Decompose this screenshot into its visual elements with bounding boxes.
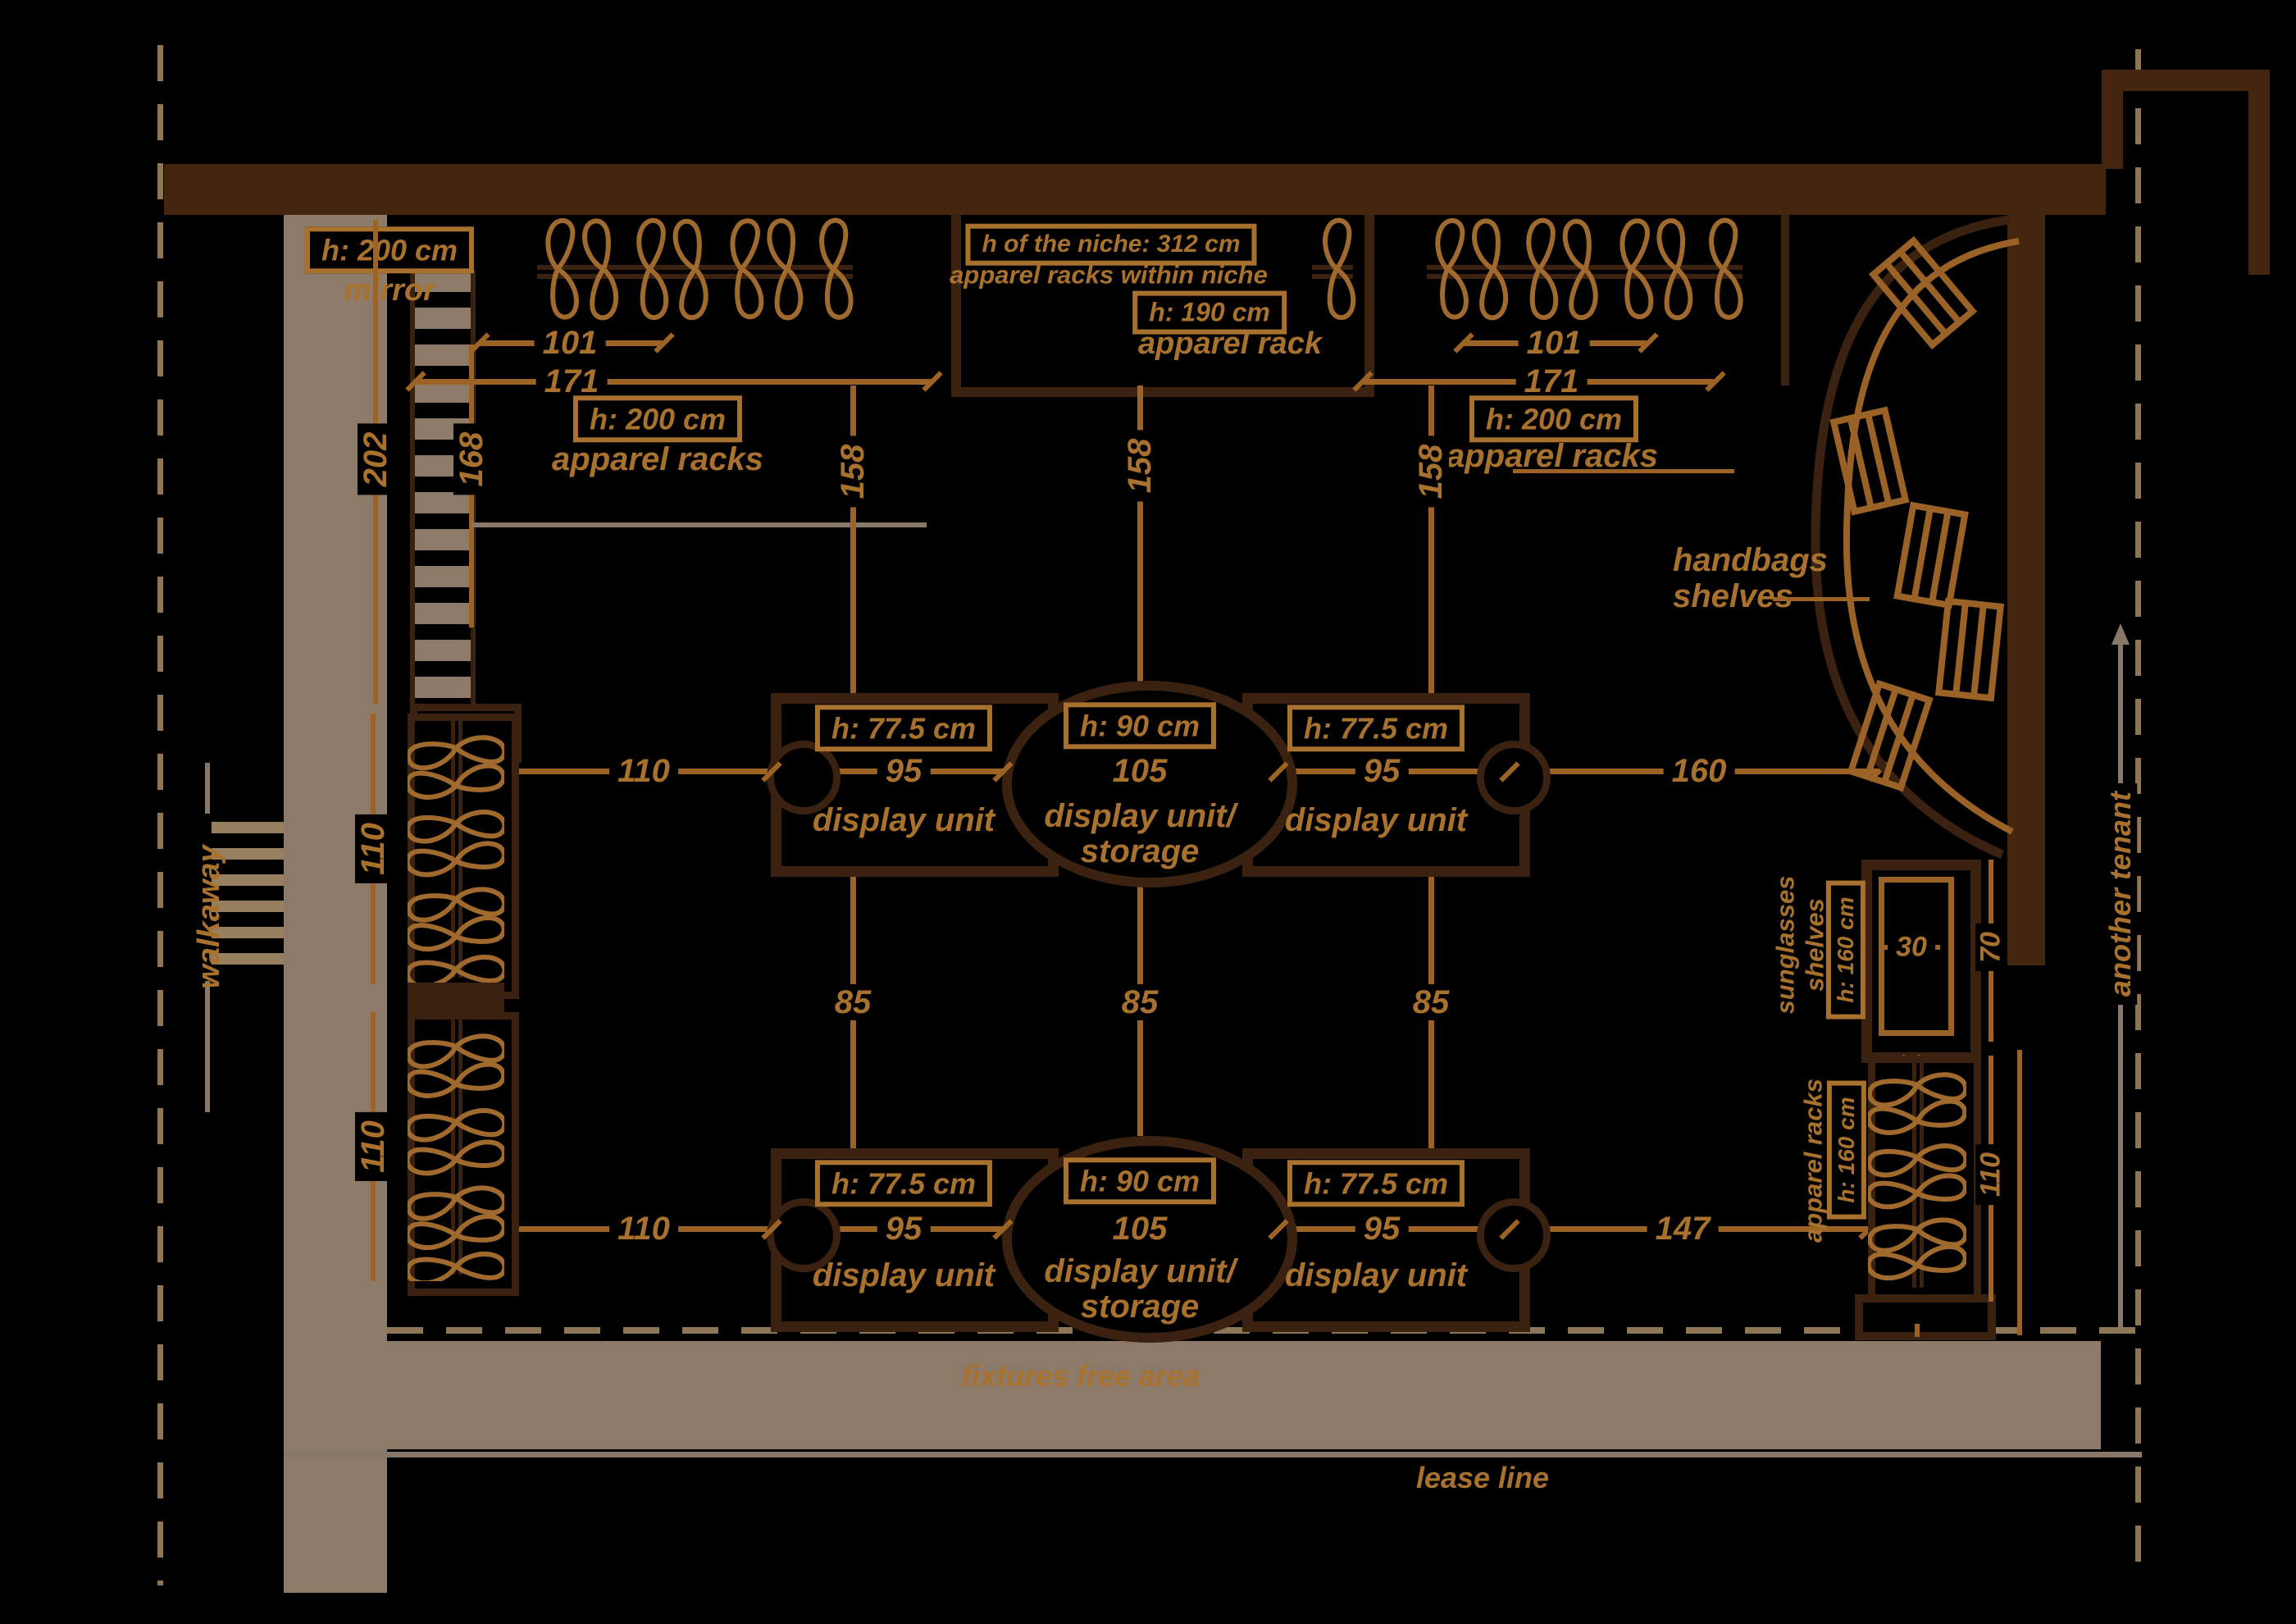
sunglasses-depth-dim: 70 [1975,924,2006,971]
mirror-edge-left [410,271,415,705]
right-rack-height-label: h: 200 cm [1469,395,1638,442]
left-rack-height-label: h: 200 cm [573,395,742,442]
arrow-up-icon [2111,623,2130,645]
handbags-leader-line [1773,597,1870,601]
right-rack-hangers-icon [1868,1056,1966,1294]
drop-dim-left: 158 [835,436,871,508]
oval-label-2: storage [1081,1289,1200,1324]
right-edge-line [2017,1050,2022,1335]
top-right-wall-join [2102,70,2123,169]
unit-label: display unit [1285,803,1467,837]
unit-width-dim: 95 [1355,1211,1409,1247]
left-rack-label: apparel racks [552,442,763,477]
handbags-label-2: shelves [1673,579,1793,614]
row2-left-dim: 110 [609,1211,678,1247]
column-circle [1477,1198,1551,1272]
right-rack-dim-101: 101 [1519,325,1590,361]
entrance-line-bottom [205,981,210,1112]
unit-height-label: h: 77.5 cm [1287,705,1465,751]
drop-line-left [850,385,856,693]
right-rack-label: apparel racks [1801,1079,1828,1243]
sunglasses-width-dim: 30 [1888,932,1935,962]
unit-width-dim: 95 [877,1211,931,1247]
row1-right-dim: 160 [1664,753,1735,789]
sunglasses-label-1: sunglasses [1773,876,1800,1015]
entrance-line-top [205,763,210,814]
row1-left-dim: 110 [609,753,678,789]
mirror-label: mirror [344,275,435,308]
aisle-dim-center: 85 [1114,984,1167,1020]
niche-height-label: h of the niche: 312 cm [965,224,1256,266]
left-rack1-hangers-icon [408,714,504,984]
niche-hanger-icon [1312,212,1361,331]
left-rack-dim-line-171 [414,379,931,385]
floor-plan: h: 200 cm mirror 202 168 101 171 h: 200 … [0,0,2296,1624]
drop-dim-center: 158 [1122,431,1158,502]
mirror-dim-outer: 202 [358,424,394,495]
right-rack-leader-line [1513,469,1734,473]
unit-width-dim: 95 [877,753,931,789]
right-rack-dim: 110 [1975,1144,2006,1205]
sunglasses-label-2: shelves [1802,898,1829,992]
oval-label-2: storage [1081,834,1200,869]
unit-height-label: h: 77.5 cm [815,705,992,751]
lease-line-label: lease line [1416,1462,1549,1494]
unit-label: display unit [813,803,995,837]
row2-right-dim: 147 [1647,1211,1719,1247]
handbags-label-1: handbags [1673,543,1828,577]
right-rack-base [1855,1294,1996,1340]
sunglasses-height-label: h: 160 cm [1826,880,1865,1019]
oval-width-dim: 105 [1105,1211,1176,1247]
another-tenant-label: another tenant [2104,783,2137,1005]
left-rack1-dim: 110 [355,814,391,883]
unit-label: display unit [1285,1258,1467,1293]
niche-label: apparel racks within niche [950,262,1268,290]
aisle-dim-right: 85 [1405,984,1458,1020]
unit-height-label: h: 77.5 cm [815,1160,992,1207]
niche-rack-label: apparel rack [1138,328,1322,361]
top-wall [164,164,2106,215]
unit-label: display unit [813,1258,995,1293]
oval-height-label: h: 90 cm [1064,702,1216,749]
aisle-dim-left: 85 [827,984,880,1020]
right-rack-hangers-icon [1427,212,1747,331]
mirror-dim-inner: 168 [453,424,490,495]
left-rack-hangers-icon [537,212,857,331]
right-rack-stub [1915,1324,1920,1337]
left-rack-dim-101: 101 [535,325,606,361]
lease-dashed-left [157,45,163,1585]
oval-width-dim: 105 [1105,753,1176,789]
left-rack2-dim: 110 [355,1112,391,1181]
oval-label: display unit/ [1044,799,1235,833]
top-right-wall-horizontal [2102,70,2270,91]
unit-width-dim: 95 [1355,753,1409,789]
unit-height-label: h: 77.5 cm [1287,1160,1465,1207]
walkway-floor-bottom [387,1341,2101,1449]
right-rack-dim-171: 171 [1516,363,1588,399]
column-circle [1477,741,1551,814]
drop-dim-right: 158 [1413,436,1449,508]
right-rack-height-label: h: 160 cm [1827,1080,1866,1219]
left-racks-connector [408,983,504,1012]
left-rack-dim-171: 171 [536,363,608,399]
oval-label: display unit/ [1044,1254,1235,1289]
lease-line [284,1452,2142,1457]
drop-line-right [1428,385,1434,693]
mirror-height-label: h: 200 cm [305,226,474,273]
fixtures-free-area-label: fixtures free area [962,1361,1200,1392]
left-rack2-hangers-icon [408,1012,504,1281]
left-rack-leader-line [471,522,927,527]
oval-height-label: h: 90 cm [1064,1157,1216,1204]
right-rack-label: apparel racks [1446,439,1658,473]
walkway-label: walkaway [194,845,226,988]
top-right-wall-vertical [2248,70,2270,275]
